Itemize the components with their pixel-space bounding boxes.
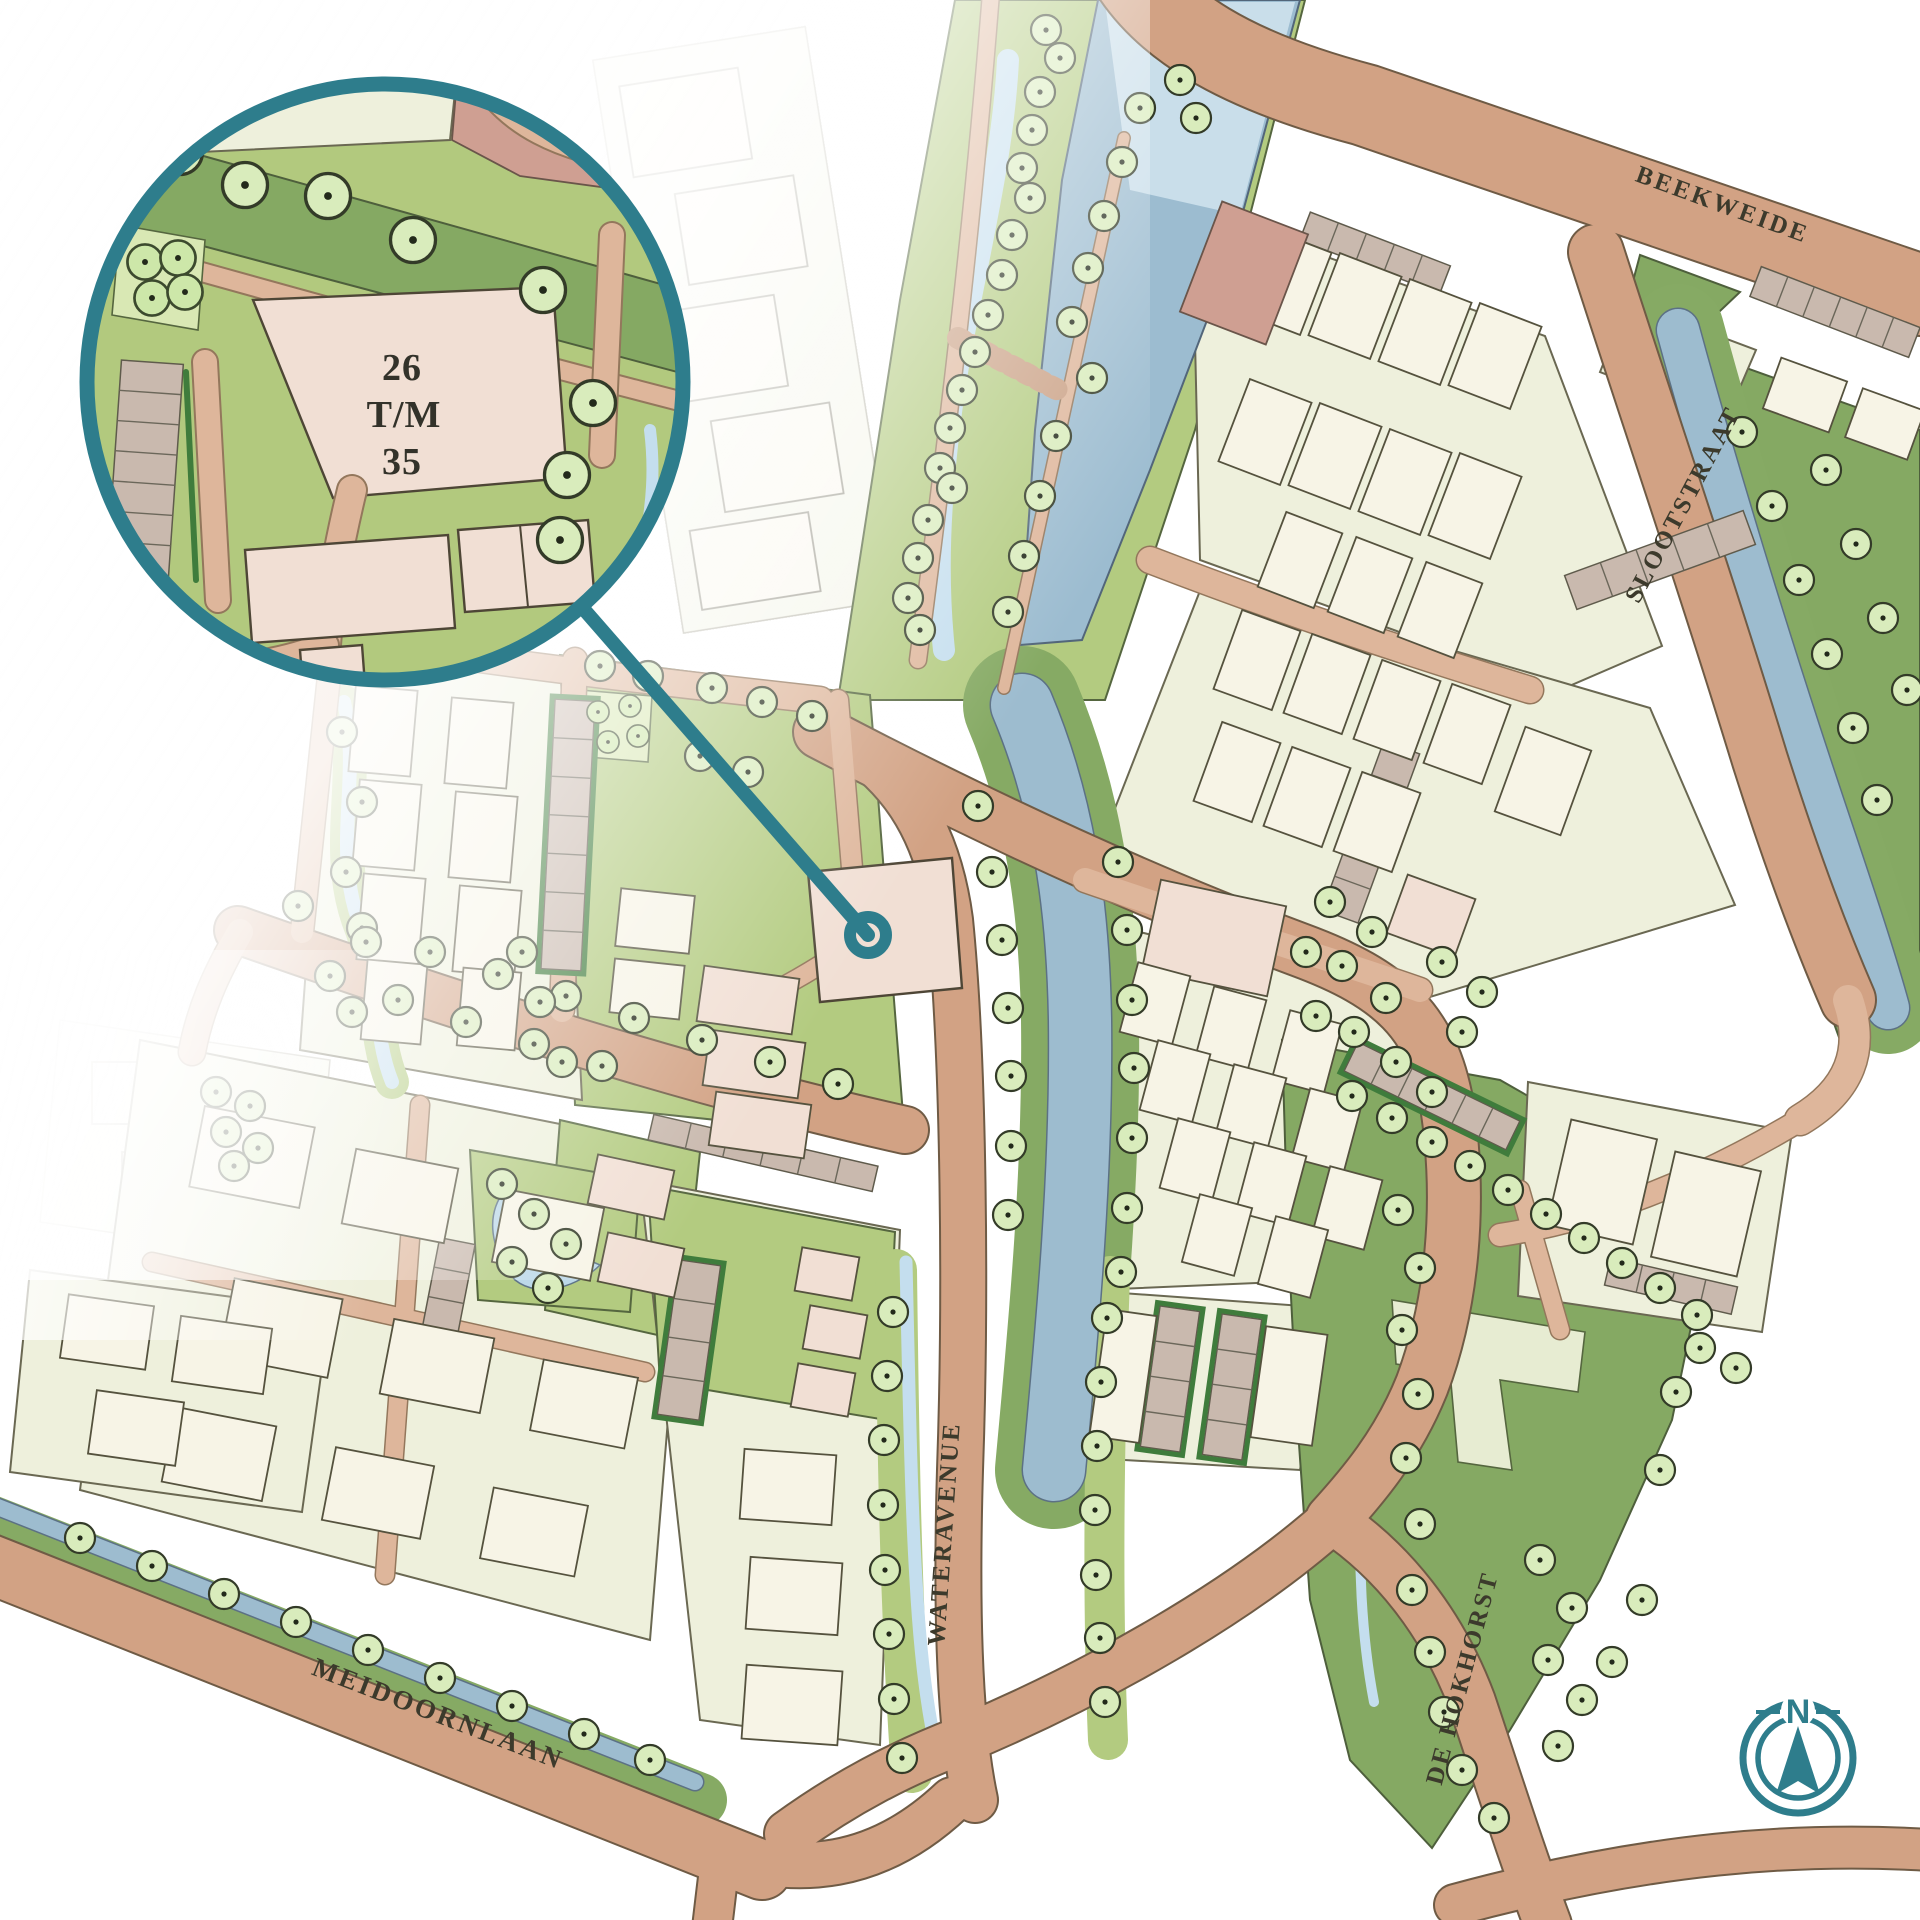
- fade-veil-left: [0, 950, 430, 1340]
- compass-north-label: N: [1786, 1693, 1811, 1731]
- magnifier-number-to: 35: [382, 441, 422, 483]
- site-plan-page: BEEKWEIDE SLOOTSTRAAT WATERAVENUE MEIDOO…: [0, 0, 1920, 1920]
- magnifier-number-range: T/M: [367, 394, 442, 436]
- site-plan-map: BEEKWEIDE SLOOTSTRAAT WATERAVENUE MEIDOO…: [0, 0, 1920, 1920]
- magnifier-number-from: 26: [382, 347, 422, 389]
- compass-needle-icon: [1776, 1726, 1820, 1794]
- compass-rose: N: [1743, 1693, 1853, 1813]
